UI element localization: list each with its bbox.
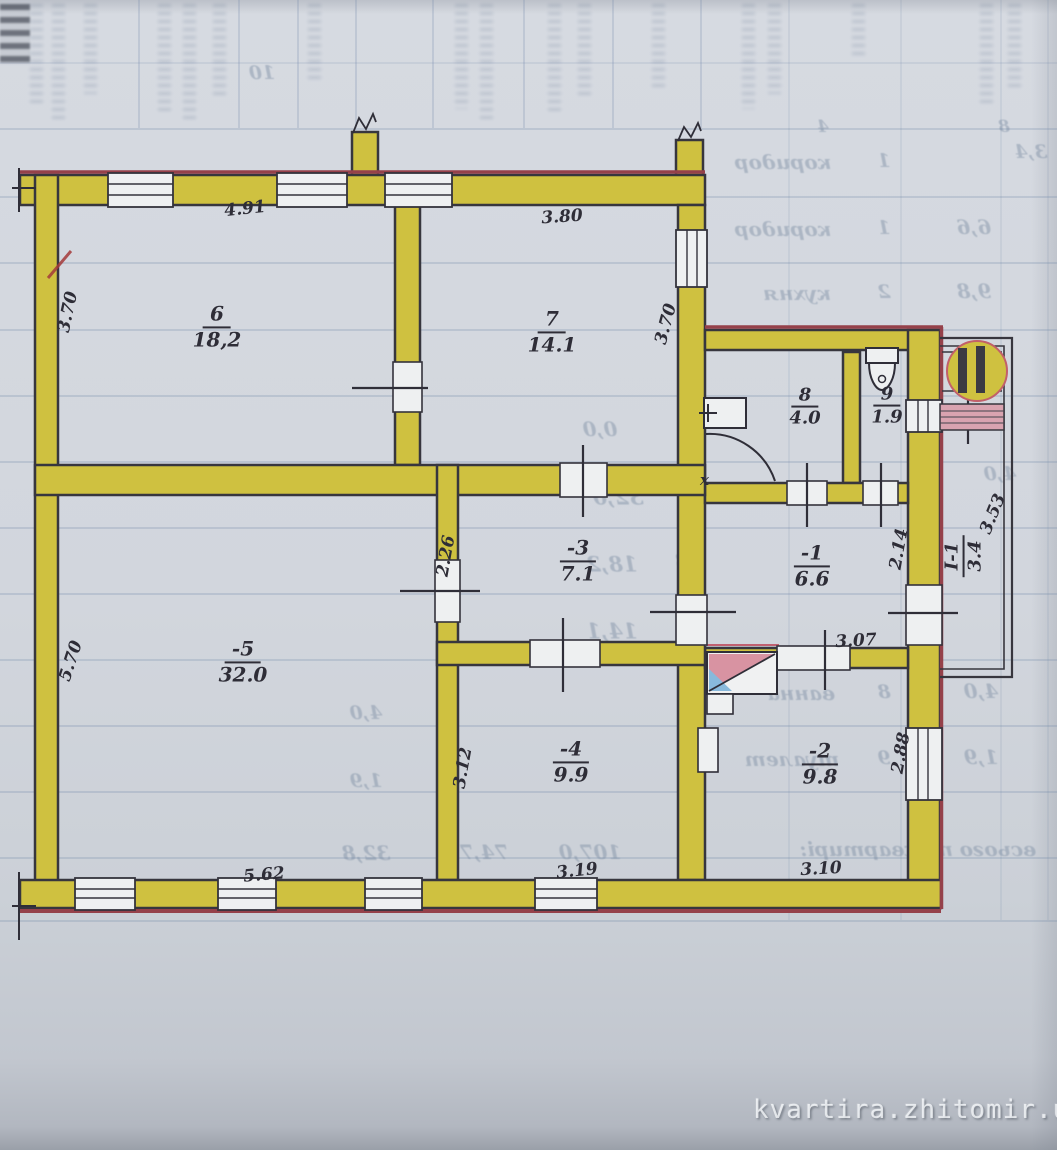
room-area: 1.9 xyxy=(871,407,902,427)
room-area: 14.1 xyxy=(528,333,577,356)
circle-bar xyxy=(976,346,985,393)
chimney-flame-mark xyxy=(353,114,376,133)
wall-exterior-left xyxy=(35,175,58,908)
wall-main-divider xyxy=(678,205,705,880)
room-label-1: -1 6.6 xyxy=(794,542,830,589)
room-area: 7.1 xyxy=(561,562,596,585)
room-number: 8 xyxy=(792,386,819,408)
room-number: I-1 xyxy=(943,535,965,577)
dimension-label: 5.62 xyxy=(243,863,286,887)
dimension-label: 3.80 xyxy=(541,206,584,229)
door-x-mark: х xyxy=(700,471,709,489)
circle-bar xyxy=(958,348,967,393)
room-area: 3.4 xyxy=(965,540,985,571)
room-number: 7 xyxy=(538,308,566,333)
room-area: 9.9 xyxy=(554,763,589,786)
room-label-4: -4 9.9 xyxy=(553,738,589,785)
dimension-label: 3.10 xyxy=(800,858,842,880)
room-label-9: 9 1.9 xyxy=(871,385,902,428)
room-label-3: -3 7.1 xyxy=(560,537,596,584)
room-label-8: 8 4.0 xyxy=(789,386,820,429)
window xyxy=(75,878,135,910)
vent-shaft xyxy=(707,652,777,714)
door-hall-room4 xyxy=(530,640,600,667)
window xyxy=(535,878,597,910)
room-number: 9 xyxy=(874,385,901,407)
window xyxy=(365,878,422,910)
wall-exterior-bottom xyxy=(20,880,941,908)
wall-room5-divider xyxy=(437,465,458,880)
room-area: 9.8 xyxy=(803,765,838,788)
room-label-balcony: I-1 3.4 xyxy=(943,535,986,577)
scanned-floor-plan-page: 10 4 8 коридор 1 3,4 коридор 1 6,6 кухня… xyxy=(0,0,1057,1150)
window xyxy=(676,230,707,287)
floor-plan-drawing xyxy=(0,0,1057,1150)
room-area: 4.0 xyxy=(789,408,820,428)
wall-room6-room7 xyxy=(395,205,420,465)
door-hall-corridor xyxy=(676,595,707,645)
room-area: 32.0 xyxy=(219,663,268,686)
room-label-6: 6 18,2 xyxy=(193,303,242,350)
window xyxy=(906,400,942,432)
wall-rightblock-top xyxy=(705,330,940,350)
chimney-flame-mark xyxy=(678,123,701,141)
door-corridor-balcony xyxy=(906,585,942,645)
room-label-2: -2 9.8 xyxy=(802,740,838,787)
wall-end-caps xyxy=(12,168,36,940)
wall-room8-room9 xyxy=(843,352,860,483)
room-number: -3 xyxy=(560,537,596,562)
watermark: kvartira.zhitomir.ua xyxy=(753,1095,1057,1125)
window xyxy=(108,173,173,207)
window xyxy=(277,173,347,207)
room-number: -5 xyxy=(225,638,261,663)
room-number: -4 xyxy=(553,738,589,763)
room-number: -2 xyxy=(802,740,838,765)
door-swing-arc xyxy=(706,434,775,481)
room-area: 6.6 xyxy=(795,567,830,590)
window xyxy=(385,173,452,207)
duct-niche xyxy=(698,728,718,772)
room-label-5: -5 32.0 xyxy=(219,638,268,685)
room-number: -1 xyxy=(794,542,830,567)
dimension-label: 3.07 xyxy=(835,630,877,652)
room-area: 18,2 xyxy=(193,328,242,351)
room-number: 6 xyxy=(203,303,231,328)
room-label-7: 7 14.1 xyxy=(528,308,577,355)
toilet-tank xyxy=(866,348,898,363)
